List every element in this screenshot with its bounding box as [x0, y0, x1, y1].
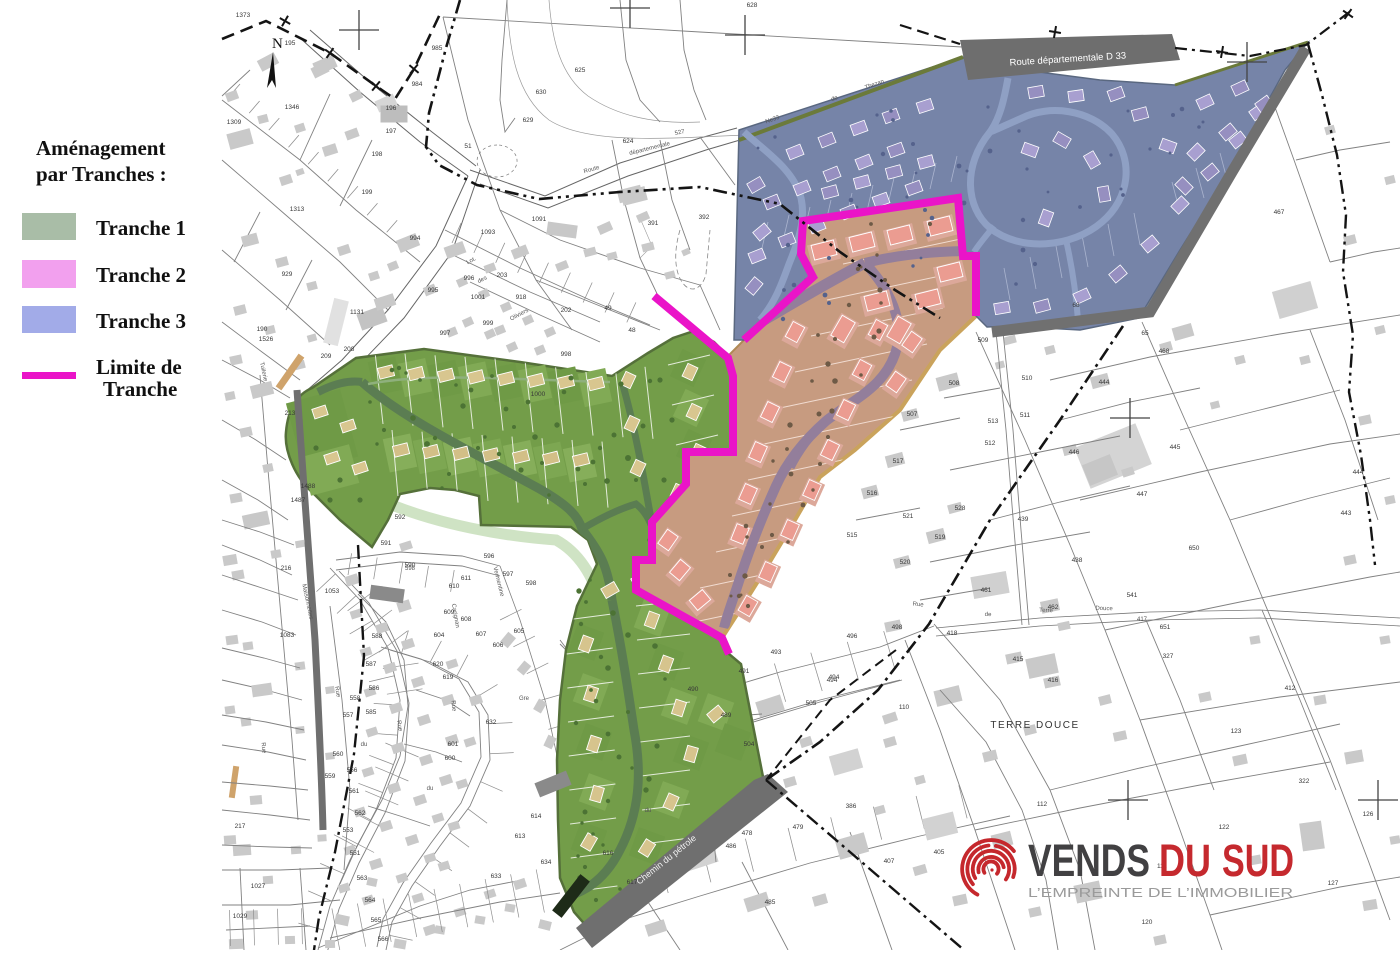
svg-text:510: 510: [1022, 375, 1033, 382]
svg-text:Tranche 2: Tranche 2: [96, 263, 186, 287]
svg-text:1526: 1526: [259, 336, 274, 343]
svg-text:565: 565: [371, 917, 382, 924]
svg-text:929: 929: [282, 271, 293, 278]
svg-text:Rue: Rue: [912, 602, 924, 609]
svg-text:391: 391: [648, 220, 659, 227]
svg-text:du: du: [361, 742, 368, 748]
svg-text:619: 619: [443, 674, 454, 681]
svg-text:520: 520: [900, 559, 911, 566]
svg-text:541: 541: [1127, 592, 1138, 599]
svg-text:48: 48: [628, 327, 636, 334]
svg-text:611: 611: [461, 575, 472, 582]
svg-text:513: 513: [988, 418, 999, 425]
svg-text:1053: 1053: [325, 588, 340, 595]
svg-text:1083: 1083: [280, 632, 295, 639]
svg-text:392: 392: [699, 214, 710, 221]
svg-text:486: 486: [726, 843, 737, 850]
svg-text:614: 614: [531, 813, 542, 820]
svg-text:68: 68: [1072, 302, 1080, 309]
svg-text:999: 999: [483, 320, 494, 327]
svg-text:195: 195: [285, 40, 296, 47]
svg-text:461: 461: [981, 587, 992, 594]
svg-text:629: 629: [523, 117, 534, 124]
svg-text:598: 598: [526, 580, 537, 587]
svg-text:585: 585: [366, 709, 377, 716]
svg-text:504: 504: [744, 741, 755, 748]
svg-text:Terre: Terre: [1039, 608, 1054, 614]
svg-text:516: 516: [867, 490, 878, 497]
svg-text:120: 120: [1142, 919, 1153, 926]
svg-text:528: 528: [955, 505, 966, 512]
svg-text:418: 418: [947, 630, 958, 637]
svg-text:213: 213: [285, 410, 296, 417]
svg-text:985: 985: [432, 45, 443, 52]
svg-text:Limite de: Limite de: [96, 355, 182, 379]
svg-text:606: 606: [493, 642, 504, 649]
svg-text:478: 478: [742, 830, 753, 837]
svg-text:515: 515: [847, 532, 858, 539]
svg-text:1091: 1091: [532, 216, 547, 223]
svg-text:996: 996: [464, 275, 475, 282]
svg-text:417: 417: [1137, 617, 1148, 623]
svg-text:521: 521: [903, 513, 914, 520]
svg-text:490: 490: [688, 686, 699, 693]
svg-text:605: 605: [514, 628, 525, 635]
svg-text:633: 633: [491, 873, 502, 880]
svg-text:601: 601: [448, 741, 459, 748]
svg-text:607: 607: [476, 631, 487, 638]
svg-text:613: 613: [515, 833, 526, 840]
svg-text:110: 110: [899, 704, 910, 711]
svg-text:444: 444: [1353, 469, 1364, 476]
svg-text:505: 505: [806, 700, 817, 707]
svg-text:632: 632: [486, 719, 497, 726]
svg-text:416: 416: [1048, 677, 1059, 684]
svg-text:VENDS: VENDS: [1028, 835, 1150, 886]
svg-text:Gre: Gre: [519, 696, 530, 702]
svg-text:485: 485: [765, 899, 776, 906]
svg-text:122: 122: [1219, 824, 1230, 831]
svg-text:553: 553: [343, 827, 354, 834]
svg-text:DU: DU: [1159, 835, 1211, 886]
svg-text:par Tranches :: par Tranches :: [36, 162, 167, 186]
svg-text:127: 127: [1328, 880, 1339, 887]
svg-text:Aménagement: Aménagement: [36, 136, 165, 160]
svg-text:447: 447: [1137, 491, 1148, 498]
svg-text:Douce: Douce: [1095, 606, 1113, 613]
svg-text:494: 494: [829, 674, 840, 681]
svg-text:564: 564: [365, 897, 376, 904]
svg-text:512: 512: [985, 440, 996, 447]
svg-text:196: 196: [386, 105, 397, 112]
svg-text:489: 489: [721, 712, 732, 719]
svg-text:995: 995: [428, 287, 439, 294]
svg-text:126: 126: [1363, 811, 1374, 818]
svg-text:511: 511: [1020, 412, 1031, 419]
svg-text:563: 563: [357, 875, 368, 882]
svg-text:1029: 1029: [233, 913, 248, 920]
svg-text:616: 616: [603, 850, 614, 857]
svg-text:468: 468: [1159, 348, 1170, 355]
svg-text:446: 446: [1069, 449, 1080, 456]
svg-text:651: 651: [1160, 624, 1171, 631]
svg-text:198: 198: [372, 151, 383, 158]
svg-text:1488: 1488: [301, 483, 316, 490]
svg-text:217: 217: [235, 823, 246, 830]
svg-text:617: 617: [627, 879, 638, 886]
svg-text:620: 620: [433, 661, 444, 668]
svg-text:405: 405: [934, 849, 945, 856]
svg-text:TERRE DOUCE: TERRE DOUCE: [990, 720, 1079, 731]
svg-text:du: du: [645, 808, 652, 814]
svg-text:596: 596: [484, 553, 495, 560]
svg-text:998: 998: [561, 351, 572, 358]
svg-text:1373: 1373: [236, 12, 251, 19]
svg-text:197: 197: [386, 128, 397, 135]
svg-text:445: 445: [1170, 444, 1181, 451]
svg-text:562: 562: [355, 810, 366, 817]
svg-text:598: 598: [405, 566, 416, 572]
svg-text:du: du: [427, 786, 434, 792]
svg-text:467: 467: [1274, 209, 1285, 216]
svg-text:1131: 1131: [350, 309, 364, 316]
svg-text:560: 560: [333, 751, 344, 758]
svg-text:604: 604: [434, 632, 445, 639]
svg-text:566: 566: [378, 936, 389, 943]
svg-text:610: 610: [449, 583, 460, 590]
svg-text:1001: 1001: [471, 294, 486, 301]
svg-text:918: 918: [516, 294, 527, 301]
svg-text:209: 209: [321, 353, 332, 360]
svg-text:496: 496: [847, 633, 858, 640]
svg-text:559: 559: [325, 773, 336, 780]
svg-text:216: 216: [281, 565, 292, 572]
svg-text:608: 608: [461, 616, 472, 623]
svg-text:587: 587: [366, 661, 377, 668]
svg-text:592: 592: [395, 514, 406, 521]
svg-text:997: 997: [440, 330, 451, 337]
svg-text:994: 994: [410, 235, 421, 242]
svg-text:625: 625: [575, 67, 586, 74]
svg-text:630: 630: [536, 89, 547, 96]
svg-text:Rue: Rue: [260, 742, 267, 754]
svg-text:de: de: [985, 612, 993, 618]
svg-text:L’EMPREINTE DE L’IMMOBILIER: L’EMPREINTE DE L’IMMOBILIER: [1028, 885, 1293, 900]
svg-text:600: 600: [445, 755, 456, 762]
svg-text:508: 508: [949, 380, 960, 387]
svg-text:Tranche 3: Tranche 3: [96, 309, 186, 333]
svg-text:203: 203: [497, 272, 508, 279]
svg-text:Rue: Rue: [450, 700, 457, 712]
svg-text:624: 624: [623, 138, 634, 145]
svg-text:444: 444: [1099, 379, 1110, 386]
svg-text:1346: 1346: [285, 104, 300, 111]
svg-text:491: 491: [739, 668, 750, 675]
svg-text:Tranche 1: Tranche 1: [96, 216, 186, 240]
svg-text:557: 557: [343, 712, 354, 719]
svg-text:65: 65: [1141, 330, 1149, 337]
svg-text:322: 322: [1299, 778, 1310, 785]
svg-text:498: 498: [892, 624, 903, 631]
svg-text:202: 202: [561, 307, 572, 314]
svg-text:407: 407: [884, 858, 895, 865]
svg-text:507: 507: [907, 411, 918, 418]
svg-text:327: 327: [1163, 653, 1174, 660]
svg-text:1093: 1093: [481, 229, 496, 236]
svg-text:N: N: [272, 36, 283, 52]
svg-text:443: 443: [1341, 510, 1352, 517]
svg-text:208: 208: [344, 346, 355, 353]
svg-text:509: 509: [978, 337, 989, 344]
svg-text:588: 588: [372, 633, 383, 640]
svg-text:112: 112: [1037, 801, 1048, 808]
svg-text:1309: 1309: [227, 119, 242, 126]
svg-text:561: 561: [349, 788, 360, 795]
svg-text:412: 412: [1285, 685, 1296, 692]
svg-text:558: 558: [350, 695, 361, 702]
svg-text:591: 591: [381, 540, 392, 547]
svg-text:650: 650: [1189, 545, 1200, 552]
svg-text:551: 551: [350, 850, 361, 857]
svg-text:123: 123: [1231, 728, 1242, 735]
svg-text:190: 190: [257, 326, 268, 333]
svg-text:634: 634: [541, 859, 552, 866]
svg-text:1000: 1000: [531, 391, 546, 398]
svg-text:199: 199: [362, 189, 373, 196]
svg-text:SUD: SUD: [1222, 835, 1294, 886]
svg-text:386: 386: [846, 803, 857, 810]
svg-text:628: 628: [747, 2, 758, 9]
svg-text:586: 586: [369, 685, 380, 692]
svg-text:438: 438: [1072, 557, 1083, 564]
svg-text:479: 479: [793, 824, 804, 831]
svg-text:49: 49: [604, 305, 612, 312]
svg-text:556: 556: [347, 767, 358, 774]
svg-text:1313: 1313: [290, 206, 305, 213]
svg-text:1487: 1487: [291, 497, 306, 504]
svg-text:Tranche: Tranche: [103, 377, 177, 401]
svg-text:519: 519: [935, 534, 946, 541]
svg-text:984: 984: [412, 81, 423, 88]
svg-text:51: 51: [464, 143, 472, 150]
svg-text:597: 597: [503, 571, 514, 578]
svg-text:493: 493: [771, 649, 782, 656]
svg-text:439: 439: [1018, 516, 1029, 523]
svg-text:1027: 1027: [251, 883, 266, 890]
svg-text:415: 415: [1013, 656, 1024, 663]
svg-text:517: 517: [893, 458, 904, 465]
